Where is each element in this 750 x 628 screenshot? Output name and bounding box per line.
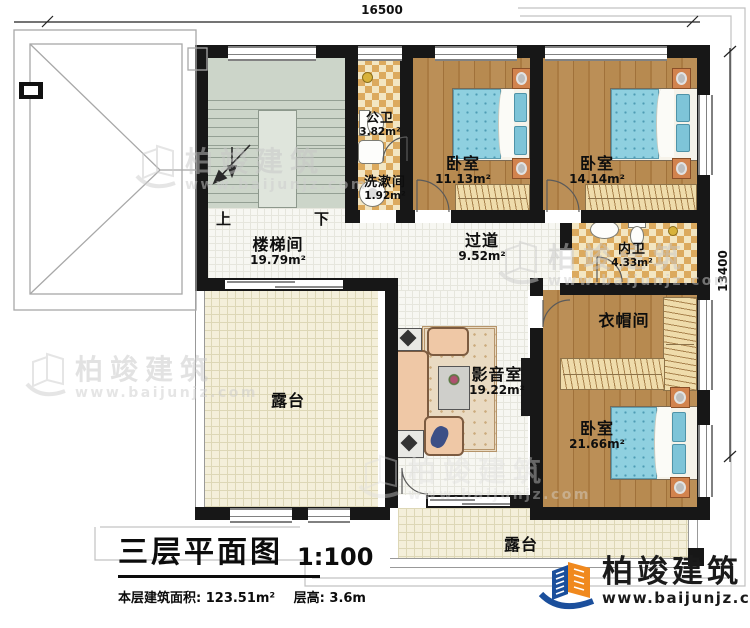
watermark-logo-icon <box>25 350 67 402</box>
terrace-left-parapet <box>195 290 205 507</box>
cloakroom-wardrobe-bottom <box>560 358 665 390</box>
brand-logo-icon <box>538 556 596 614</box>
chimney-inner <box>24 86 38 95</box>
bed-small-sheet <box>498 89 514 157</box>
window-right-bedroom-mid <box>698 95 713 175</box>
wardrobe-bedroom-mid <box>585 184 697 211</box>
brand-name: 柏竣建筑 <box>602 556 750 589</box>
stair-landing <box>258 110 297 208</box>
bed-mid-sheet <box>656 89 674 157</box>
coffee-table <box>438 366 470 410</box>
stair-up-label: 上 <box>216 208 231 229</box>
door-gap-media <box>398 495 426 508</box>
dimension-top: 16500 <box>352 3 412 17</box>
label-public-bath: 公卫 3.82m² <box>359 112 400 138</box>
nightstand <box>670 387 690 408</box>
door-gap-bedroom-mid <box>545 210 581 223</box>
bed-mid-mattress <box>611 89 659 159</box>
chimney <box>19 82 43 99</box>
watermark-logo-icon <box>135 142 177 194</box>
bed-large-pillow <box>672 412 686 442</box>
door-gap-bedroom-small <box>415 210 451 223</box>
bed-mid-pillow <box>676 124 690 152</box>
wall-ensuite-bottom <box>560 283 710 295</box>
label-bedroom-large: 卧室 21.66m² <box>569 420 625 452</box>
wall-media-left <box>385 278 398 508</box>
nightstand <box>512 68 531 89</box>
stair-treads-left <box>208 148 258 208</box>
label-terrace-bottom: 露台 <box>504 536 538 554</box>
brand-logo: 柏竣建筑 www.baijunjz.com <box>538 556 750 614</box>
label-media-room: 影音室 19.22m² <box>469 366 525 398</box>
label-terrace-left: 露台 <box>271 392 305 410</box>
label-hallway: 过道 9.52m² <box>458 232 505 264</box>
label-bedroom-mid: 卧室 14.14m² <box>569 155 625 187</box>
wall-terrace-left-bottom <box>195 507 390 520</box>
wall-left <box>195 45 208 290</box>
window-terrace-left-2 <box>308 508 350 523</box>
wall-stair-bath <box>345 45 358 223</box>
wall-below-bedrooms <box>345 210 710 223</box>
plan-title: 三层平面图 <box>118 527 283 571</box>
floor-height-text: 层高: 3.6m <box>294 591 366 606</box>
plan-scale: 1:100 <box>297 543 373 571</box>
label-stairwell: 楼梯间 19.79m² <box>250 236 306 268</box>
window-terrace-left-1 <box>230 508 292 523</box>
window-right-cloakroom <box>698 300 713 390</box>
bed-large-pillow <box>672 444 686 474</box>
bed-large-sheet <box>654 407 671 477</box>
faucet-dot <box>362 72 373 83</box>
nightstand <box>672 158 691 179</box>
title-block: 三层平面图 1:100 本层建筑面积: 123.51m² 层高: 3.6m <box>118 527 373 606</box>
watermark-brand: 柏竣建筑 <box>75 356 215 384</box>
stair-down-label: 下 <box>314 208 329 229</box>
door-gap-ensuite <box>560 250 572 283</box>
door-gap-washroom <box>360 210 396 223</box>
bath-cabinet <box>358 140 384 164</box>
sofa-top <box>427 327 469 356</box>
sliding-door-media <box>428 497 510 506</box>
stair-treads-right <box>295 148 345 202</box>
bed-small-pillow <box>514 93 527 122</box>
wall-between-bedrooms <box>530 45 543 223</box>
nightstand <box>670 477 690 498</box>
floor-plan-canvas: 16500 13400 柏竣建筑www.baijunjz.com 柏竣建筑www… <box>0 0 750 628</box>
label-cloakroom: 衣帽间 <box>598 312 649 330</box>
sliding-door-stairwell <box>225 280 343 289</box>
label-bedroom-small: 卧室 11.13m² <box>435 155 491 187</box>
nightstand <box>512 158 531 179</box>
floor-area-text: 本层建筑面积: 123.51m² <box>118 591 275 606</box>
door-gap-cloakroom <box>530 296 543 328</box>
cloakroom-wardrobe-right <box>663 297 697 391</box>
wardrobe-bedroom-small <box>455 184 530 211</box>
brand-url: www.baijunjz.com <box>602 589 750 607</box>
window-top-stairwell <box>228 46 316 61</box>
window-right-bedroom-large <box>698 425 713 497</box>
bed-small-mattress <box>453 89 501 159</box>
window-top-bath <box>358 46 402 61</box>
window-top-bedroom-small <box>435 46 517 61</box>
nightstand <box>672 68 691 89</box>
faucet-dot <box>668 226 678 236</box>
bed-small-pillow <box>514 126 527 155</box>
label-ensuite-bath: 内卫 4.33m² <box>611 243 652 269</box>
bed-mid-pillow <box>676 94 690 122</box>
window-top-bedroom-mid <box>545 46 667 61</box>
wall-bedroom-large-bottom <box>540 507 710 520</box>
title-underline <box>118 575 320 578</box>
dimension-right: 13400 <box>716 248 730 294</box>
label-washroom: 洗漱间 1.92m² <box>364 176 406 202</box>
